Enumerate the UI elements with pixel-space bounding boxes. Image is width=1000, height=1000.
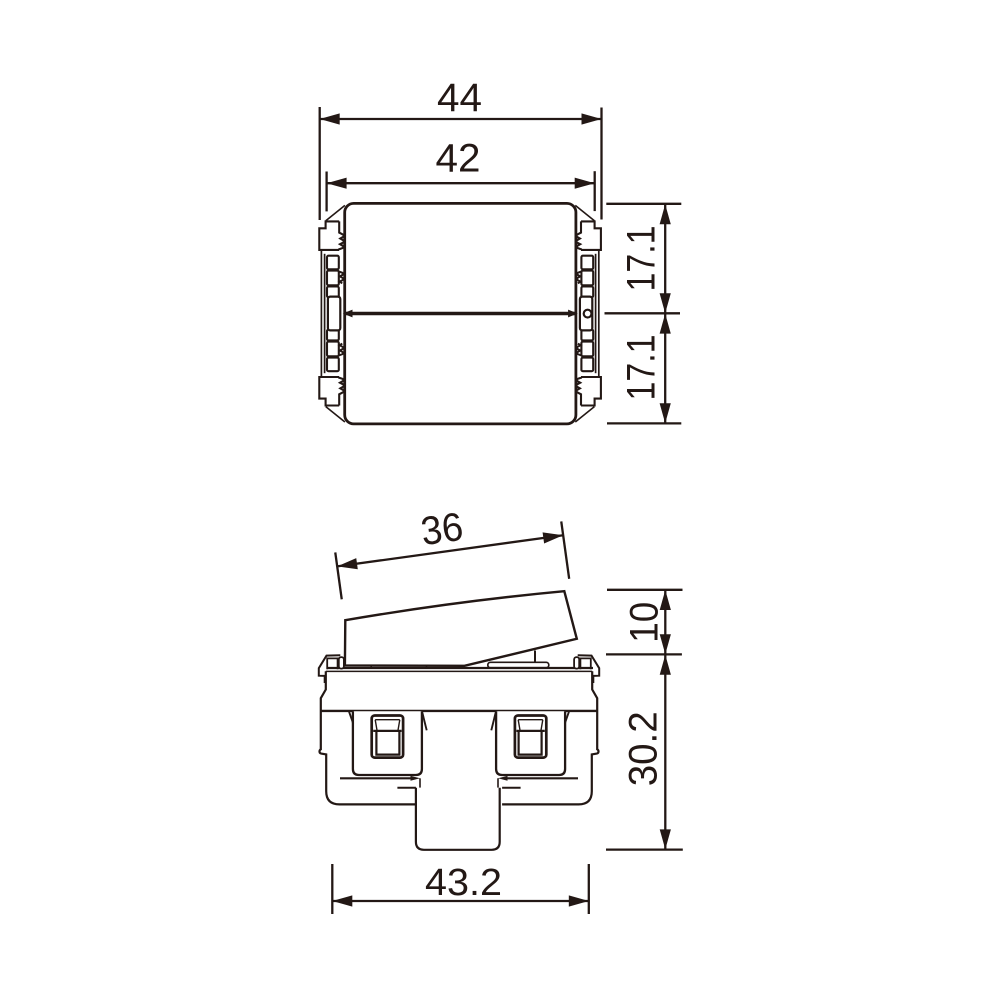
svg-text:10: 10 <box>623 602 667 643</box>
svg-text:17.1: 17.1 <box>620 335 664 401</box>
svg-text:44: 44 <box>437 76 482 120</box>
svg-text:36: 36 <box>418 505 466 554</box>
svg-text:17.1: 17.1 <box>620 226 664 292</box>
svg-text:42: 42 <box>436 137 481 181</box>
svg-text:30.2: 30.2 <box>622 711 666 786</box>
svg-text:43.2: 43.2 <box>425 862 502 904</box>
